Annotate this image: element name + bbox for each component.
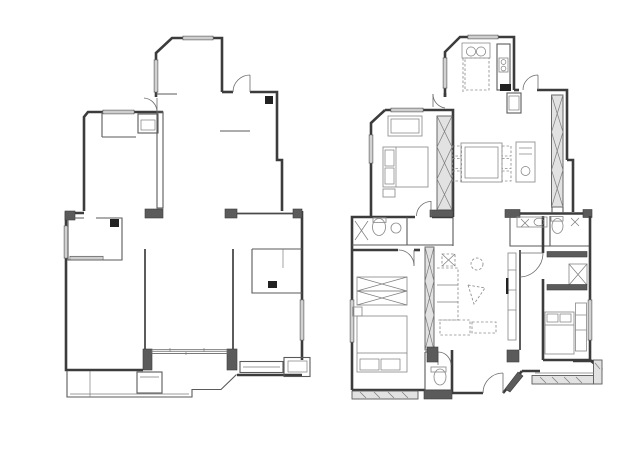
structural-column [507,350,519,362]
bathroom-fixture [110,219,119,227]
structural-column [430,210,453,217]
cabinet-hatch [532,376,594,385]
structural-column [427,347,438,362]
tv [506,278,509,294]
structural-column [227,349,237,370]
structural-column [65,211,75,220]
structural-column [225,209,237,218]
structural-column [505,210,520,218]
structural-column [424,390,452,399]
structural-column [547,252,587,258]
structural-column [145,209,163,218]
wall-fixture [265,96,273,104]
structural-column [293,209,302,218]
bathroom-fixture [268,281,277,288]
structural-column [547,285,587,291]
appliance [500,84,511,91]
floor-plans-svg [0,0,640,453]
structural-column [143,349,152,370]
floor-plan-canvas [0,0,640,453]
cabinet-hatch [594,360,603,384]
